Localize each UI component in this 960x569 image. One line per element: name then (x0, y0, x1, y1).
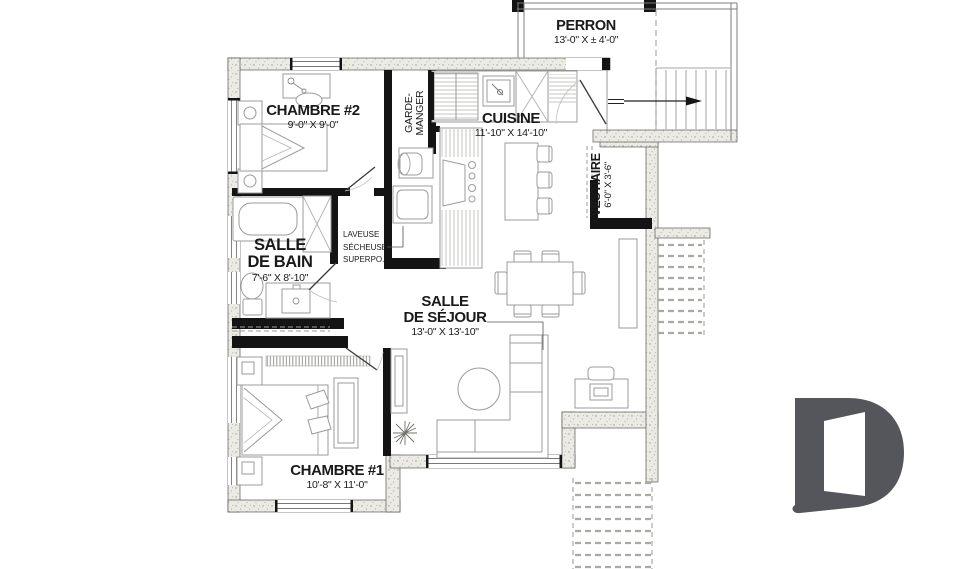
perron-dims: 13'-0" X ± 4'-0" (520, 35, 652, 46)
kitchen-counters (429, 71, 577, 268)
room-label-salle-de-sejour: SALLE DE SÉJOUR 13'-0" X 13'-10" (370, 294, 520, 338)
garde-manger-desk (398, 148, 433, 178)
room-label-vestiaire: VESTIAIRE 6'-0" X 3'-6" (590, 137, 624, 233)
label-laveuse-secheuse: LAVEUSE SÉCHEUSE SUPERPO. (343, 229, 403, 267)
room-label-garde-manger: GARDE- MANGER (404, 78, 430, 148)
room-label-salle-de-bain: SALLE DE BAIN 7'-6" X 8'-10" (205, 237, 355, 284)
stairs-right-dashed (658, 240, 704, 336)
perron-name: PERRON (520, 19, 652, 34)
plant (393, 421, 417, 445)
chambre1-dims: 10'-8" X 11'-0" (257, 480, 417, 491)
vestiaire-name: VESTIAIRE (590, 137, 603, 233)
stairs-bottom-dashed (573, 478, 652, 569)
cuisine-dims: 11'-10" X 14'-10" (431, 128, 591, 139)
room-label-chambre1: CHAMBRE #1 10'-8" X 11'-0" (257, 463, 417, 491)
laveuse-line3: SUPERPO. (343, 254, 403, 267)
chambre2-dims: 9'-0" X 9'-0" (233, 120, 393, 131)
room-label-chambre2: CHAMBRE #2 9'-0" X 9'-0" (233, 103, 393, 131)
chambre2-name: CHAMBRE #2 (233, 103, 393, 119)
bain-line2: DE BAIN (205, 254, 355, 271)
room-label-cuisine: CUISINE 11'-10" X 14'-10" (431, 111, 591, 139)
bain-dims: 7'-6" X 8'-10" (205, 273, 355, 284)
garde-manger-line2: MANGER (415, 78, 426, 148)
sejour-line2: DE SÉJOUR (370, 310, 520, 326)
floor-plan-drawing (0, 0, 960, 569)
floor-plan-page: PERRON 13'-0" X ± 4'-0" CHAMBRE #2 9'-0"… (0, 0, 960, 569)
room-label-perron: PERRON 13'-0" X ± 4'-0" (520, 19, 652, 46)
cuisine-name: CUISINE (431, 111, 591, 127)
kitchen-island (505, 143, 552, 220)
sejour-dims: 13'-0" X 13'-10" (370, 327, 520, 338)
sejour-line1: SALLE (370, 294, 520, 310)
chambre2-furniture (238, 74, 330, 193)
vestiaire-dims: 6'-0" X 3'-6" (604, 137, 614, 233)
laveuse-line1: LAVEUSE (343, 229, 403, 242)
drummond-d-logo (793, 398, 904, 513)
exterior-stairs (608, 68, 730, 130)
laveuse-line2: SÉCHEUSE (343, 242, 403, 255)
bain-line1: SALLE (205, 237, 355, 254)
chambre1-name: CHAMBRE #1 (257, 463, 417, 479)
